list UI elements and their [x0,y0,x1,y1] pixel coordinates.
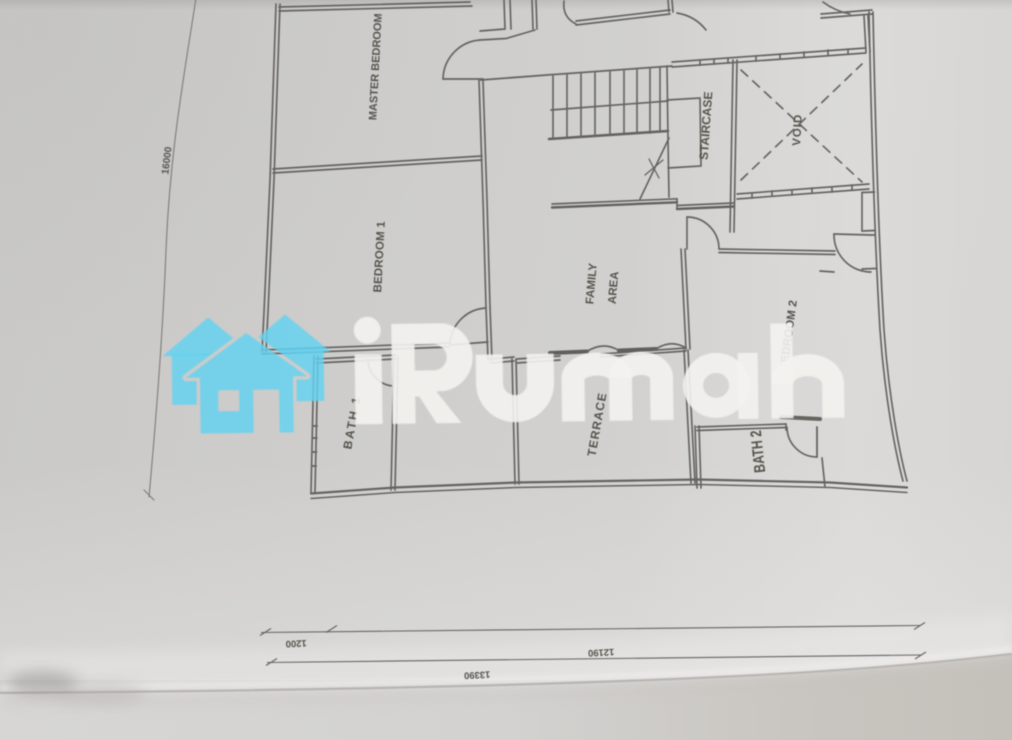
svg-text:FAMILY: FAMILY [584,262,600,304]
svg-text:VOID: VOID [791,113,805,146]
svg-text:MASTER BEDROOM: MASTER BEDROOM [367,13,385,120]
svg-text:16000: 16000 [160,146,174,175]
svg-text:12190: 12190 [588,646,615,658]
svg-text:BEDROOM 1: BEDROOM 1 [372,220,388,292]
svg-text:1200: 1200 [285,637,307,649]
svg-text:TERRACE: TERRACE [585,391,610,457]
svg-text:AREA: AREA [607,271,622,305]
svg-text:13390: 13390 [464,668,491,680]
svg-text:BATH 2: BATH 2 [746,429,768,473]
